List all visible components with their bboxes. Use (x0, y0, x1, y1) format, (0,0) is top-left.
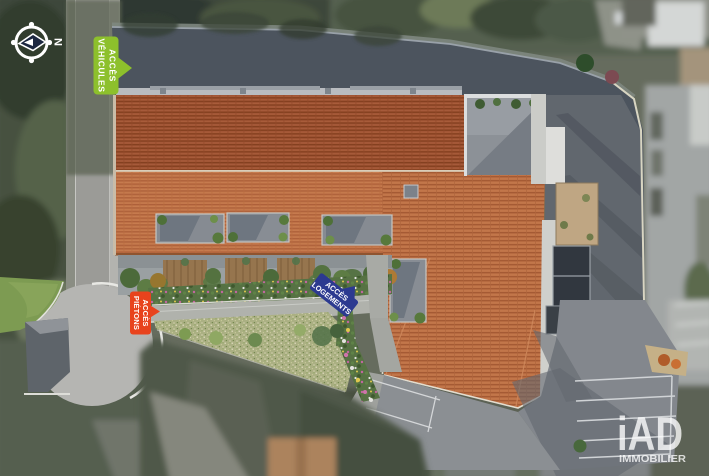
svg-text:IMMOBILIER: IMMOBILIER (619, 454, 687, 465)
svg-text:ACCÈS: ACCÈS (141, 299, 150, 326)
svg-text:iAD: iAD (617, 407, 683, 460)
svg-text:N: N (52, 38, 64, 46)
svg-text:VÉHICULES: VÉHICULES (97, 38, 107, 92)
svg-text:ACCÈS: ACCÈS (108, 49, 118, 82)
svg-text:PIÉTONS: PIÉTONS (132, 296, 141, 330)
